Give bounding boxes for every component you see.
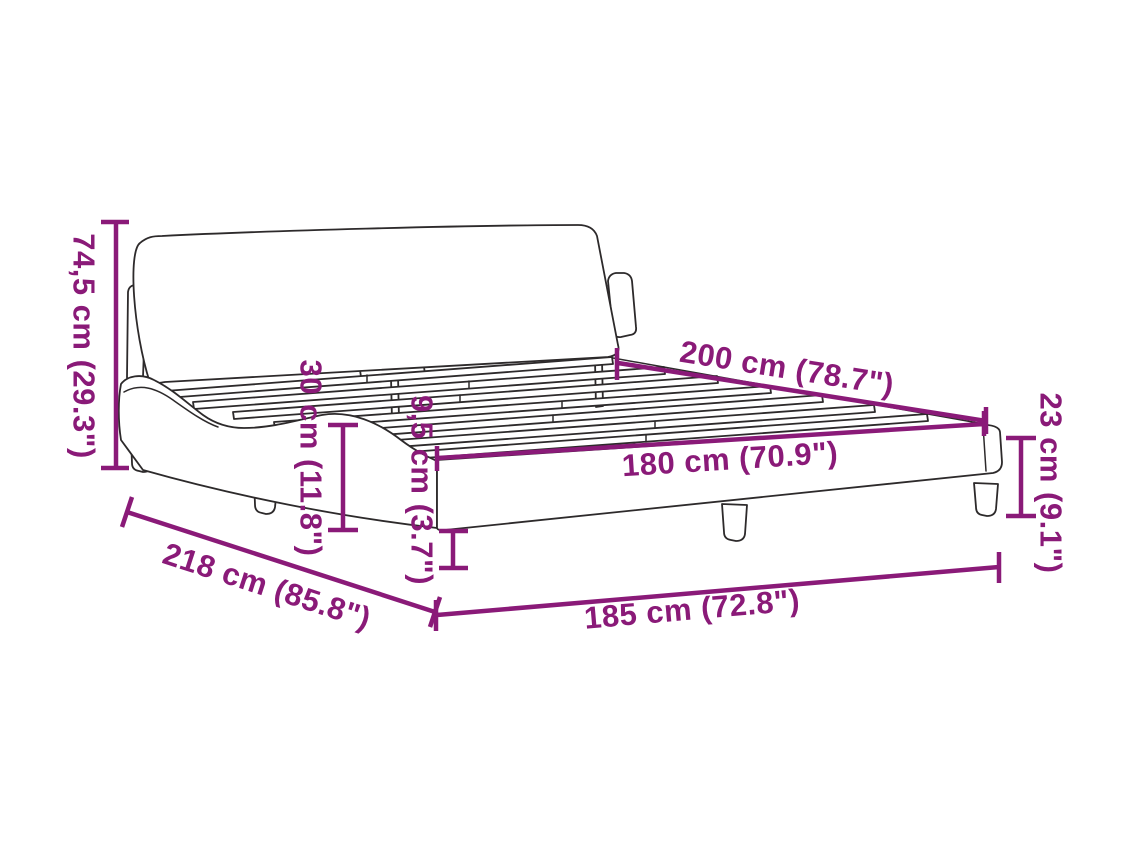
dimension-label: 218 cm (85.8") bbox=[159, 536, 376, 636]
leg-center-front bbox=[722, 504, 747, 541]
bed-frame-dimension-diagram: 74,5 cm (29.3") 30 cm (11.8") 9,5 cm (3.… bbox=[0, 0, 1134, 850]
dimension-line bbox=[439, 531, 468, 568]
dimension-label: 185 cm (72.8") bbox=[583, 582, 802, 635]
dimension-label: 74,5 cm (29.3") bbox=[67, 233, 102, 459]
dimension-label: 23 cm (9.1") bbox=[1034, 393, 1069, 574]
headboard bbox=[133, 225, 618, 383]
dimension-label: 30 cm (11.8") bbox=[294, 360, 329, 557]
dimension-foot-end-height: 23 cm (9.1") bbox=[1006, 393, 1069, 574]
dimension-label: 9,5 cm (3.7") bbox=[405, 395, 440, 585]
dimension-frame-width: 185 cm (72.8") bbox=[436, 552, 999, 636]
diagram-canvas: 74,5 cm (29.3") 30 cm (11.8") 9,5 cm (3.… bbox=[0, 0, 1134, 850]
leg-foot-right bbox=[974, 483, 998, 516]
dimension-line bbox=[1006, 438, 1036, 516]
